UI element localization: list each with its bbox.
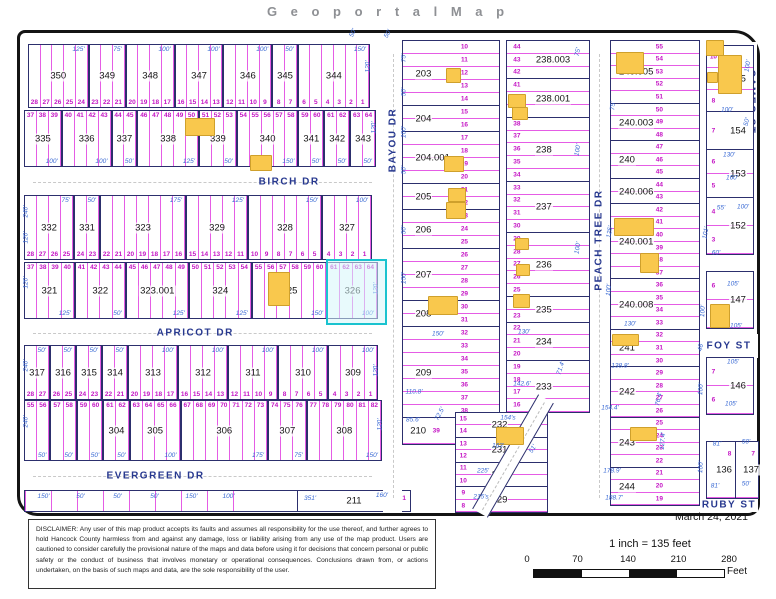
parcel-block-349[interactable]: 23222134975' [89, 44, 126, 108]
lot-row: 35 [507, 156, 589, 169]
lot-cell: 22 [101, 196, 113, 259]
dimension-label: 125' [183, 158, 195, 165]
parcel-block-240.006[interactable]: 4443240.006 [610, 178, 700, 205]
block-number: 324 [211, 285, 229, 296]
parcel-block-307[interactable]: 74757630775' [268, 400, 307, 461]
dimension-label: 50' [117, 452, 125, 459]
lot-number: 14 [205, 391, 212, 398]
parcel-block-310[interactable]: 8765310100' [278, 345, 328, 400]
lot-number: 3 [339, 251, 343, 258]
lot-number: 8 [461, 502, 465, 509]
lot-number: 14 [461, 96, 468, 103]
building-footprint [448, 188, 466, 202]
block-number: 309 [344, 367, 362, 378]
lot-number: 19 [140, 99, 147, 106]
lot-number: 52 [216, 264, 223, 271]
lot-number: 14 [201, 251, 208, 258]
parcel-block-308[interactable]: 777879808182308150' [307, 400, 382, 461]
dimension-label: 125' [173, 310, 185, 317]
parcel-block-343[interactable]: 636434350' [350, 110, 376, 167]
lot-number: 47 [153, 264, 160, 271]
lot-number: 65 [157, 402, 164, 409]
lot-number: 30 [461, 304, 468, 311]
lot-cell: 9 [260, 45, 272, 107]
dimension-label: 120' [372, 364, 379, 376]
block-number: 238.001 [535, 93, 571, 104]
lot-number: 49 [656, 119, 663, 126]
dimension-label: 100' [697, 383, 705, 395]
lot-number: 57 [275, 112, 282, 119]
parcel-block-238.003[interactable]: 444342238.003 [506, 40, 590, 80]
lot-number: 4 [333, 391, 337, 398]
dimension-label: 100' [95, 158, 107, 165]
lot-cell: 28 [29, 45, 41, 107]
lot-number: 9 [265, 251, 269, 258]
lot-cell: 55 [25, 401, 37, 460]
lot-number: 28 [461, 278, 468, 285]
block-number: 136 [715, 465, 733, 476]
lot-row: 33 [403, 340, 499, 353]
dimension-label: 50' [64, 452, 72, 459]
lot-number: 44 [513, 43, 520, 50]
lot-number: 15 [189, 251, 196, 258]
parcel-block-315[interactable]: 242331550' [76, 345, 102, 400]
lot-number: 32 [513, 197, 520, 204]
dimension-label: 178.9' [603, 468, 621, 475]
dimension-label: 175' [170, 197, 182, 204]
parcel-block-337[interactable]: 444533750' [112, 110, 138, 167]
lot-number: 42 [90, 264, 97, 271]
lot-cell: 6 [299, 45, 311, 107]
parcel-block-331[interactable]: 242333150' [74, 195, 100, 260]
parcel-block-207[interactable]: 26272829207 [402, 248, 500, 302]
block-number: 240.003 [618, 117, 654, 128]
building-footprint [718, 55, 742, 94]
dimension-label: 46' [697, 342, 705, 352]
block-number: 154 [729, 126, 747, 137]
block-number: 235 [535, 304, 553, 315]
dimension-label: 130' [518, 329, 530, 336]
parcel-block-240.003[interactable]: 504948240.003 [610, 103, 700, 143]
lot-number: 15 [189, 99, 196, 106]
lot-number: 78 [322, 402, 329, 409]
parcel-block-341[interactable]: 596034150' [298, 110, 324, 167]
lot-number: 42 [656, 206, 663, 213]
parcel-block-306[interactable]: 67686970717273306175' [181, 400, 269, 461]
dimension-label: 240' [23, 416, 30, 428]
lot-number: 34 [513, 171, 520, 178]
building-footprint [706, 40, 724, 56]
dimension-label: 50' [742, 439, 750, 446]
parcel-block-328[interactable]: 1098765328150' [248, 195, 322, 260]
parcel-block-344[interactable]: 654321344150' [298, 44, 370, 108]
building-footprint [446, 202, 466, 219]
parcel-block-323[interactable]: 22212019181716323175' [100, 195, 186, 260]
road-birch-dr: BIRCH DR [22, 169, 383, 195]
lot-cell: 68 [194, 401, 206, 460]
lot-number: 11 [238, 99, 245, 106]
block-number: 205 [415, 192, 433, 203]
lot-number: 56 [263, 112, 270, 119]
lot-number: 29 [461, 291, 468, 298]
lot-number: 17 [513, 389, 520, 396]
lot-number: 37 [513, 133, 520, 140]
selected-parcel-highlight[interactable] [326, 259, 387, 325]
block-number: 238.003 [535, 55, 571, 66]
block-number: 210 [409, 426, 427, 437]
lot-row: 19 [611, 493, 699, 506]
block-number: 332 [40, 222, 58, 233]
lot-number: 25 [513, 287, 520, 294]
parcel-block-327[interactable]: 4321327100' [322, 195, 372, 260]
lot-number: 41 [78, 264, 85, 271]
dimension-label: 240' [23, 359, 30, 371]
lot-number: 50 [192, 264, 199, 271]
parcel-block-347[interactable]: 16151413347100' [175, 44, 224, 108]
block-number: 137 [742, 465, 760, 476]
block-number: 323.001 [139, 285, 175, 296]
lot-cell: 17 [162, 45, 174, 107]
block-number: 209 [415, 367, 433, 378]
dimension-label: 75' [609, 101, 617, 110]
lot-number: 28 [656, 382, 663, 389]
lot-cell: 77 [308, 401, 320, 460]
lot-number: 71 [232, 402, 239, 409]
parcel-block-324[interactable]: 5051525354324125' [189, 262, 252, 319]
dimension-label: 110.8' [405, 389, 422, 396]
lot-number: 10 [251, 251, 258, 258]
lot-cell: 67 [182, 401, 194, 460]
lot-number: 8 [712, 97, 716, 104]
map-canvas[interactable]: BIRCH DRAPRICOT DREVERGREEN DRBAYOU DRPE… [0, 0, 776, 599]
street-label-peach-tree-dr: PEACH TREE DR [594, 189, 605, 290]
road-ruby-st: RUBY ST [700, 497, 758, 512]
lot-cell: 13 [211, 45, 223, 107]
dimension-label: 160' [376, 492, 388, 499]
lot-cell: 5 [309, 196, 321, 259]
parcel-block-137[interactable]: 7137 [735, 441, 759, 499]
lot-row: 26 [403, 249, 499, 262]
parcel-block-342[interactable]: 616234250' [324, 110, 350, 167]
parcel-block[interactable]: 575850' [50, 400, 76, 461]
lot-row: 19 [507, 361, 589, 374]
lot-number: 17 [164, 99, 171, 106]
lot-number: 75 [283, 402, 290, 409]
parcel-block[interactable]: 555650' [24, 400, 50, 461]
dimension-label: 55' [717, 205, 725, 212]
block-number: 206 [415, 224, 433, 235]
dimension-label: 100' [162, 347, 174, 354]
block-tier-t3: 2827262533275'242333150'2221201918171632… [24, 195, 372, 260]
building-footprint [513, 294, 530, 308]
dimension-label: 120' [23, 231, 30, 243]
lot-number: 26 [53, 391, 60, 398]
block-number: 342 [328, 133, 346, 144]
lot-number: 7 [751, 451, 755, 458]
lot-number: 62 [339, 112, 346, 119]
lot-number: 5 [712, 182, 716, 189]
dimension-label: 100' [210, 493, 247, 500]
lot-row: 32 [403, 327, 499, 340]
parcel-block-317[interactable]: 282731750' [24, 345, 50, 400]
lot-number: 13 [212, 99, 219, 106]
dimension-label: 50' [364, 158, 372, 165]
dimension-label: 60' [712, 250, 720, 257]
lot-number: 7 [712, 127, 716, 134]
lot-number: 24 [461, 226, 468, 233]
lot-cell: 5 [310, 45, 322, 107]
parcel-block-345[interactable]: 8734550' [272, 44, 297, 108]
lot-number: 42 [513, 69, 520, 76]
lot-number: 6 [307, 391, 311, 398]
lot-cell: 16 [179, 346, 191, 399]
street-label-evergreen-dr: EVERGREEN DR [107, 470, 205, 481]
lot-number: 31 [513, 210, 520, 217]
block-number: 240 [618, 155, 636, 166]
lot-row: 52 [611, 79, 699, 92]
dimension-label: 120' [23, 277, 30, 289]
building-footprint [446, 68, 461, 83]
dimension-label: 50' [285, 46, 293, 53]
dimension-label: 50' [401, 166, 408, 174]
lot-number: 19 [143, 391, 150, 398]
block-number: 347 [190, 71, 208, 82]
lot-number: 6 [712, 396, 716, 403]
dimension-label: 215's [473, 494, 488, 501]
lot-number: 11 [243, 391, 250, 398]
lot-number: 17 [167, 391, 174, 398]
lot-number: 16 [175, 251, 182, 258]
parcel-block-336[interactable]: 40414243336100' [62, 110, 112, 167]
parcel-block-204[interactable]: 1516204 [402, 105, 500, 133]
dimension-label: 50' [136, 493, 173, 500]
parcel-block-244[interactable]: 212019244 [610, 467, 700, 507]
lot-number: 18 [151, 251, 158, 258]
parcel-block-346[interactable]: 1211109346100' [223, 44, 272, 108]
lot-row: 36 [611, 279, 699, 292]
dimension-label: 125' [72, 46, 84, 53]
dimension-label: 100' [605, 284, 613, 297]
lot-number: 43 [102, 264, 109, 271]
lot-number: 25 [461, 239, 468, 246]
lot-number: 27 [461, 265, 468, 272]
lot-number: 48 [165, 264, 172, 271]
block-number: 307 [278, 425, 296, 436]
lot-cell: 45 [127, 263, 139, 318]
lot-number: 67 [184, 402, 191, 409]
dimension-label: 50' [125, 158, 133, 165]
block-number: 327 [338, 222, 356, 233]
lot-number: 43 [656, 194, 663, 201]
parcel-block-329[interactable]: 1514131211329125' [186, 195, 248, 260]
lot-number: 25 [656, 420, 663, 427]
geoportal-map-page: G e o p o r t a l M a p BIRCH DRAPRICOT … [0, 0, 776, 599]
lot-number: 15 [460, 415, 467, 422]
parcel-block-316[interactable]: 262531650' [50, 345, 76, 400]
lot-number: 16 [181, 391, 188, 398]
lot-number: 15 [193, 391, 200, 398]
lot-number: 2 [349, 99, 353, 106]
lot-number: 25 [63, 251, 70, 258]
lot-number: 32 [656, 332, 663, 339]
lot-number: 54 [241, 264, 248, 271]
block-tier-t6: 555650'575850'596050'616230450'636465663… [24, 400, 382, 461]
lot-number: 63 [133, 402, 140, 409]
lot-number: 7 [289, 251, 293, 258]
dimension-label: 150' [354, 46, 366, 53]
parcel-block-304[interactable]: 616230450' [103, 400, 129, 461]
dimension-label: 154's [500, 415, 515, 422]
block-number: 203 [415, 68, 433, 79]
parcel-block-242[interactable]: 29282726242 [610, 366, 700, 418]
dimension-label: 75' [113, 46, 121, 53]
block-number: 316 [54, 367, 72, 378]
parcel-block-209[interactable]: 32333435363738209 [402, 326, 500, 419]
dimension-label: 50' [224, 158, 232, 165]
lot-number: 21 [115, 251, 122, 258]
dimension-label: 125' [232, 197, 244, 204]
dimension-label: 75' [294, 452, 302, 459]
parcel-block-322[interactable]: 4142434432250' [75, 262, 126, 319]
lot-number: 12 [226, 99, 233, 106]
building-footprint [707, 72, 718, 83]
lot-number: 1 [363, 251, 367, 258]
lot-number: 18 [152, 99, 159, 106]
building-footprint [512, 107, 528, 120]
lot-number: 40 [64, 264, 71, 271]
lot-number: 73 [257, 402, 264, 409]
lot-number: 45 [656, 169, 663, 176]
road-peach-tree-dr: PEACH TREE DR [588, 40, 610, 512]
lot-number: 23 [89, 251, 96, 258]
lot-row: 10 [403, 41, 499, 54]
block-number: 346 [239, 71, 257, 82]
lot-number: 69 [208, 402, 215, 409]
lot-number: 79 [334, 402, 341, 409]
dimension-label: 100' [401, 126, 408, 138]
parcel-block-348[interactable]: 20191817348100' [126, 44, 175, 108]
parcel-block-136[interactable]: 8136 [706, 441, 737, 499]
lot-number: 46 [656, 156, 663, 163]
lot-row: 42 [611, 204, 699, 217]
lot-number: 10 [461, 44, 468, 51]
block-number: 242 [618, 387, 636, 398]
parcel-block-309[interactable]: 4321309100' [328, 345, 378, 400]
block-number: 345 [276, 71, 294, 82]
lot-number: 7 [712, 368, 716, 375]
dimension-label: 142.6' [513, 381, 531, 388]
parcel-block-240[interactable]: 474645240 [610, 140, 700, 180]
parcel-block-335[interactable]: 373839335100' [24, 110, 62, 167]
lot-number: 35 [656, 294, 663, 301]
lot-number: 45 [126, 112, 133, 119]
lot-number: 41 [656, 219, 663, 226]
lot-number: 58 [292, 264, 299, 271]
dimension-label: 105' [725, 401, 737, 408]
parcel-block-305[interactable]: 63646566305100' [130, 400, 181, 461]
dimension-label: 188.7' [605, 495, 623, 502]
dimension-label: 50' [88, 197, 96, 204]
parcel-block-314[interactable]: 222131450' [102, 345, 128, 400]
lot-number: 21 [513, 338, 520, 345]
parcel-block-311[interactable]: 1211109311100' [228, 345, 278, 400]
building-footprint [515, 238, 529, 250]
lot-number: 35 [461, 369, 468, 376]
lot-number: 48 [164, 112, 171, 119]
lot-number: 37 [461, 395, 468, 402]
block-number: 240.001 [618, 236, 654, 247]
dimension-label: 50' [348, 28, 358, 39]
lot-number: 10 [255, 391, 262, 398]
lot-number: 23 [513, 312, 520, 319]
lot-number: 21 [115, 99, 122, 106]
parcel-block-313[interactable]: 20191817313100' [128, 345, 178, 400]
lot-number: 44 [115, 264, 122, 271]
lot-number: 60 [92, 402, 99, 409]
parcel-block[interactable]: 596050' [77, 400, 103, 461]
lot-number: 56 [39, 402, 46, 409]
lot-number: 21 [656, 470, 663, 477]
dimension-label: 81' [711, 483, 719, 490]
dimension-label: 150' [366, 452, 378, 459]
parcel-block-350[interactable]: 2827262524350125' [28, 44, 89, 108]
lot-number: 29 [656, 370, 663, 377]
lot-row: 11 [403, 54, 499, 67]
lot-number: 11 [460, 465, 467, 472]
lot-number: 22 [656, 457, 663, 464]
block-number: 146 [729, 381, 747, 392]
parcel-block-237[interactable]: 33323130237 [506, 181, 590, 234]
dimension-label: 50' [742, 481, 750, 488]
lot-cell: 1 [359, 196, 371, 259]
lot-number: 13 [217, 391, 224, 398]
lot-number: 19 [656, 495, 663, 502]
dimension-label: 150' [173, 493, 210, 500]
lot-number: 47 [152, 112, 159, 119]
lot-number: 19 [139, 251, 146, 258]
lot-number: 36 [461, 382, 468, 389]
dimension-label: 100' [737, 204, 749, 211]
lot-number: 30 [513, 223, 520, 230]
lot-number: 20 [128, 99, 135, 106]
block-tier-t1: 2827262524350125'23222134975'20191817348… [28, 44, 370, 108]
lot-number: 51 [204, 264, 211, 271]
lot-number: 8 [277, 251, 281, 258]
parcel-block-332[interactable]: 2827262533275' [24, 195, 74, 260]
lot-number: 3 [712, 236, 716, 243]
lot-number: 3 [345, 391, 349, 398]
lot-cell: 40 [63, 111, 75, 166]
lot-number: 80 [346, 402, 353, 409]
dimension-label: 130' [624, 321, 636, 328]
dimension-label: 150' [25, 493, 62, 500]
lot-number: 2 [357, 391, 361, 398]
parcel-block-312[interactable]: 16151413312100' [178, 345, 228, 400]
lot-number: 15 [461, 109, 468, 116]
lot-number: 27 [39, 391, 46, 398]
lot-number: 20 [656, 483, 663, 490]
block-number: 322 [91, 285, 109, 296]
parcel-block-321[interactable]: 37383940321125' [24, 262, 75, 319]
dimension-label: 85.6' [406, 417, 420, 424]
lot-number: 27 [42, 99, 49, 106]
parcel-block-243[interactable]: 25242322243 [610, 417, 700, 469]
lot-number: 61 [106, 402, 113, 409]
lot-cell: 46 [138, 111, 150, 166]
lot-number: 5 [314, 99, 318, 106]
lot-cell: 9 [261, 196, 273, 259]
parcel-block-323.001[interactable]: 4546474849323.001125' [126, 262, 189, 319]
